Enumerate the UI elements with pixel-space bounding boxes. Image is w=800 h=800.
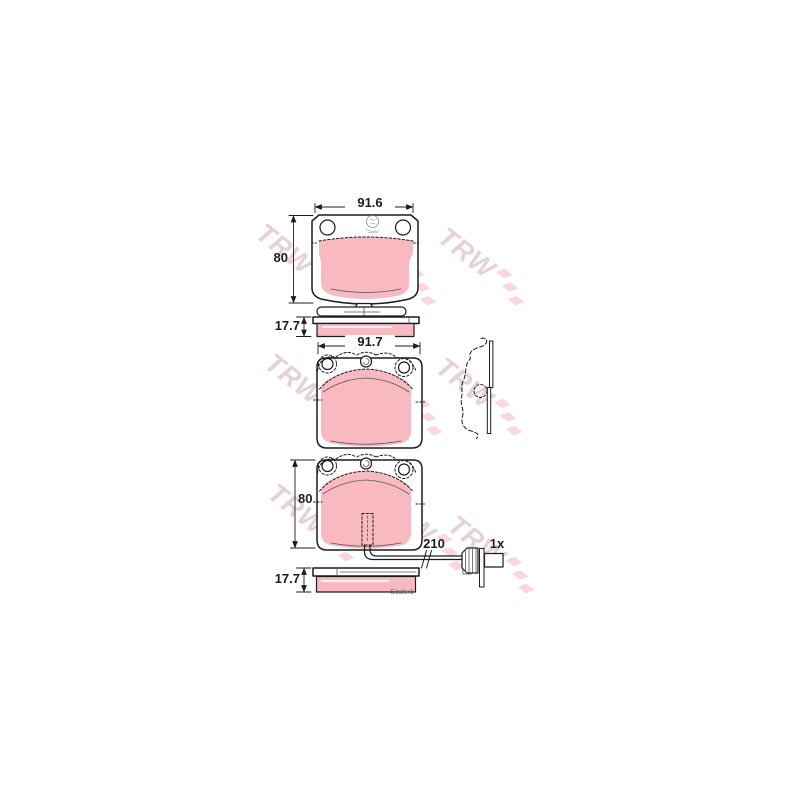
sensor-quantity-label: 1x [486, 537, 508, 551]
pad-front-view-3 [314, 454, 504, 587]
brake-pad-technical-drawing: TRW TRW TRW TRW TRW TRW TRW TRW TRW [0, 0, 800, 800]
mounting-hole-right [396, 220, 411, 235]
side2-thickness-label: 17.7 [268, 572, 300, 586]
scale-note: Scale:1 [386, 589, 418, 597]
dimension-pad1-height [289, 216, 313, 304]
sensor-wire-length-label: 210 [418, 537, 450, 551]
wear-sensor-connector [462, 548, 503, 587]
pad1-height-label: 80 [264, 251, 288, 265]
anti-noise-shim [317, 304, 406, 317]
pad3-height-label: 80 [298, 492, 320, 506]
side1-thickness-label: 17.7 [268, 319, 300, 333]
spring-clip-profile [461, 338, 493, 438]
shim-edge-view [487, 388, 490, 434]
pad2-width-label: 91.7 [345, 335, 395, 349]
mounting-hole-left [320, 220, 335, 235]
pad1-width-label: 91.6 [345, 196, 395, 210]
pad-front-view-2 [314, 352, 425, 448]
technical-drawing-svg [0, 0, 800, 800]
shim-edge-view [490, 341, 493, 388]
pad-front-view-1 [312, 215, 419, 304]
